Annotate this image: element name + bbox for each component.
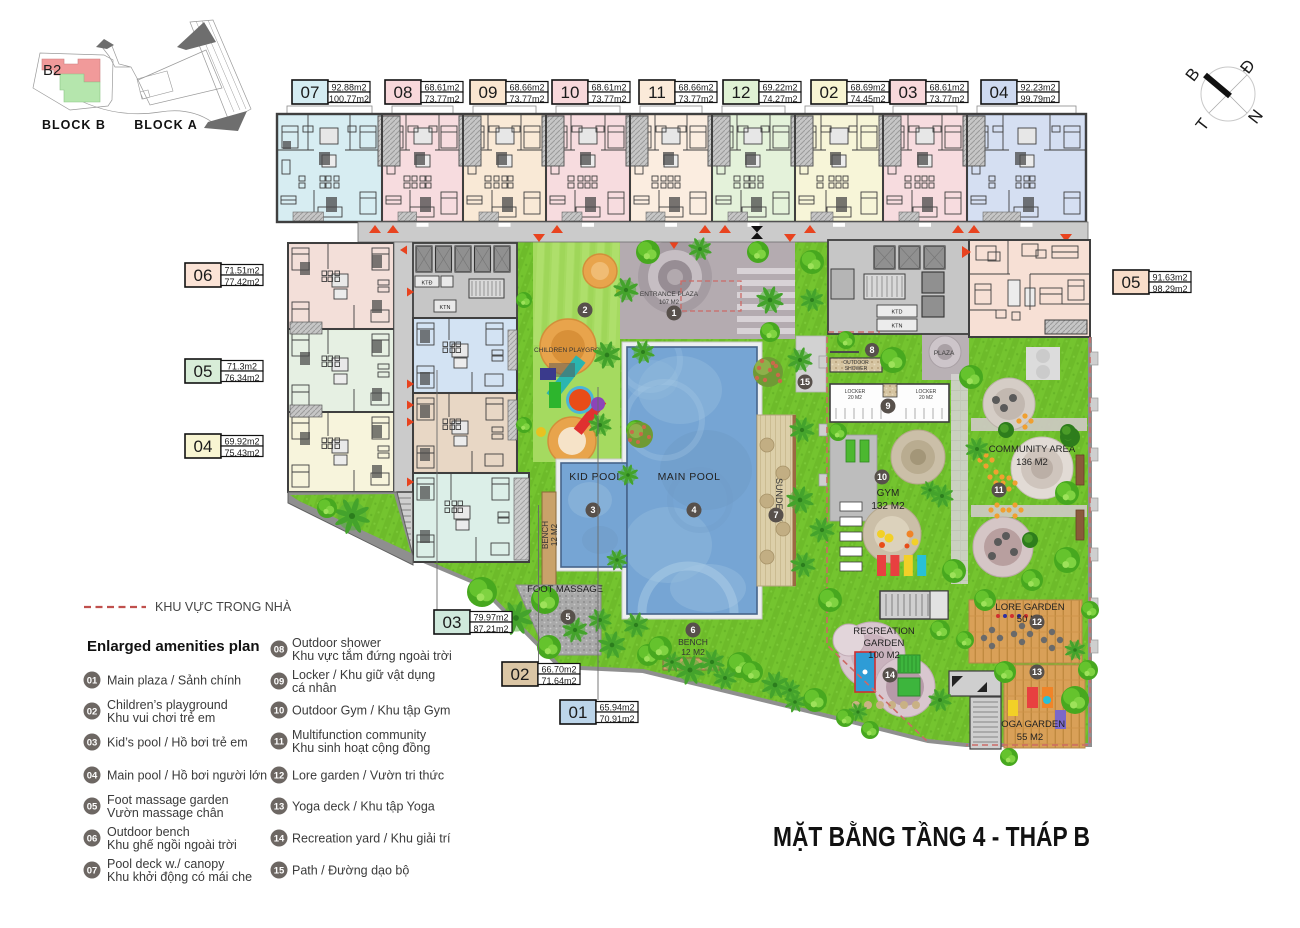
svg-text:14: 14 — [274, 834, 285, 845]
svg-text:06: 06 — [87, 834, 98, 845]
svg-text:13: 13 — [274, 802, 285, 813]
svg-text:99.79m2: 99.79m2 — [1020, 94, 1055, 104]
svg-text:68.61m2: 68.61m2 — [929, 83, 964, 93]
svg-text:BENCH: BENCH — [541, 521, 550, 549]
svg-text:68.69m2: 68.69m2 — [850, 83, 885, 93]
svg-text:cá nhân: cá nhân — [292, 681, 337, 695]
svg-text:05: 05 — [194, 362, 213, 381]
svg-text:Path / Đường dạo bộ: Path / Đường dạo bộ — [292, 864, 409, 878]
svg-text:15: 15 — [274, 866, 285, 877]
svg-text:73.77m2: 73.77m2 — [591, 94, 626, 104]
svg-text:12: 12 — [1032, 617, 1042, 627]
svg-text:Foot massage garden: Foot massage garden — [107, 793, 229, 807]
svg-text:01: 01 — [87, 676, 98, 687]
svg-text:10: 10 — [877, 472, 887, 482]
svg-text:BENCH: BENCH — [678, 637, 708, 647]
svg-text:73.77m2: 73.77m2 — [424, 94, 459, 104]
svg-text:14: 14 — [885, 670, 895, 680]
svg-text:MAIN POOL: MAIN POOL — [658, 471, 721, 483]
svg-text:MẶT BẰNG TẦNG 4 - THÁP B: MẶT BẰNG TẦNG 4 - THÁP B — [773, 821, 1090, 852]
svg-text:68.61m2: 68.61m2 — [424, 83, 459, 93]
svg-text:75.43m2: 75.43m2 — [224, 448, 259, 458]
svg-text:BLOCK A: BLOCK A — [134, 118, 197, 132]
svg-text:92.88m2: 92.88m2 — [331, 83, 366, 93]
svg-text:11: 11 — [274, 737, 285, 748]
svg-text:Enlarged amenities plan: Enlarged amenities plan — [87, 638, 260, 655]
svg-text:07: 07 — [87, 866, 98, 877]
svg-text:69.22m2: 69.22m2 — [762, 83, 797, 93]
svg-text:04: 04 — [194, 437, 213, 456]
svg-text:COMMUNITY AREA: COMMUNITY AREA — [989, 444, 1076, 455]
svg-text:PLAZA: PLAZA — [934, 350, 955, 357]
svg-text:03: 03 — [899, 83, 918, 102]
svg-text:10: 10 — [274, 706, 285, 717]
svg-text:9: 9 — [885, 401, 890, 411]
svg-text:20 M2: 20 M2 — [848, 395, 862, 401]
svg-text:91.63m2: 91.63m2 — [1152, 273, 1187, 283]
svg-text:11: 11 — [994, 485, 1004, 495]
svg-text:RECREATION: RECREATION — [853, 626, 915, 637]
svg-text:6: 6 — [690, 625, 695, 635]
svg-text:KTN: KTN — [892, 324, 903, 330]
svg-text:69.92m2: 69.92m2 — [224, 437, 259, 447]
svg-text:92.23m2: 92.23m2 — [1020, 83, 1055, 93]
svg-text:8: 8 — [869, 345, 874, 355]
svg-text:KTĐ: KTĐ — [422, 281, 433, 287]
svg-text:Khu vực tắm đứng ngoài trời: Khu vực tắm đứng ngoài trời — [292, 648, 452, 663]
svg-text:05: 05 — [87, 802, 98, 813]
svg-text:Main pool / Hồ bơi người lớn: Main pool / Hồ bơi người lớn — [107, 769, 267, 783]
svg-text:20 M2: 20 M2 — [919, 395, 933, 401]
svg-text:Khu sinh hoạt cộng đồng: Khu sinh hoạt cộng đồng — [292, 741, 430, 755]
svg-text:02: 02 — [511, 665, 530, 684]
svg-text:132 M2: 132 M2 — [871, 501, 905, 512]
svg-text:79.97m2: 79.97m2 — [473, 613, 508, 623]
svg-text:GARDEN: GARDEN — [864, 638, 905, 649]
svg-text:KTN: KTN — [440, 305, 451, 311]
svg-text:76.34m2: 76.34m2 — [224, 373, 259, 383]
svg-text:Outdoor shower: Outdoor shower — [292, 636, 381, 650]
svg-text:Locker / Khu giữ vật dụng: Locker / Khu giữ vật dụng — [292, 668, 435, 682]
svg-text:BLOCK B: BLOCK B — [42, 118, 106, 132]
svg-text:7: 7 — [773, 510, 778, 520]
svg-text:08: 08 — [274, 645, 285, 656]
svg-text:66.70m2: 66.70m2 — [541, 665, 576, 675]
svg-text:15: 15 — [800, 377, 810, 387]
svg-text:09: 09 — [274, 677, 285, 688]
svg-text:65.94m2: 65.94m2 — [599, 703, 634, 713]
svg-text:74.45m2: 74.45m2 — [850, 94, 885, 104]
svg-text:12 M2: 12 M2 — [681, 647, 705, 657]
svg-text:2: 2 — [582, 305, 587, 315]
svg-text:68.61m2: 68.61m2 — [591, 83, 626, 93]
svg-text:71.51m2: 71.51m2 — [224, 266, 259, 276]
svg-text:77.42m2: 77.42m2 — [224, 277, 259, 287]
svg-text:Khu ghế ngồi ngoài trời: Khu ghế ngồi ngoài trời — [107, 838, 237, 852]
svg-text:12 M2: 12 M2 — [550, 523, 559, 546]
svg-text:13: 13 — [1032, 667, 1042, 677]
svg-text:04: 04 — [990, 83, 1009, 102]
svg-text:71.3m2: 71.3m2 — [227, 362, 257, 372]
svg-text:68.66m2: 68.66m2 — [509, 83, 544, 93]
svg-text:12: 12 — [274, 771, 285, 782]
svg-text:Multifunction community: Multifunction community — [292, 728, 427, 742]
svg-text:70.91m2: 70.91m2 — [599, 714, 634, 724]
svg-text:Vườn massage chân: Vườn massage chân — [107, 806, 224, 820]
svg-text:12: 12 — [732, 83, 751, 102]
svg-text:YOGA GARDEN: YOGA GARDEN — [995, 719, 1065, 730]
svg-text:KTD: KTD — [892, 310, 903, 316]
svg-text:Outdoor bench: Outdoor bench — [107, 825, 190, 839]
svg-text:KID POOL: KID POOL — [569, 471, 623, 483]
svg-text:Khu khởi động có mái che: Khu khởi động có mái che — [107, 870, 252, 884]
svg-text:01: 01 — [569, 703, 588, 722]
svg-text:68.66m2: 68.66m2 — [678, 83, 713, 93]
svg-text:Khu vui chơi trẻ em: Khu vui chơi trẻ em — [107, 711, 215, 725]
svg-text:Kid’s pool / Hồ bơi trẻ em: Kid’s pool / Hồ bơi trẻ em — [107, 736, 248, 750]
svg-text:Main plaza / Sảnh chính: Main plaza / Sảnh chính — [107, 674, 241, 688]
svg-text:10: 10 — [561, 83, 580, 102]
svg-text:5: 5 — [565, 612, 570, 622]
svg-text:06: 06 — [194, 266, 213, 285]
svg-text:98.29m2: 98.29m2 — [1152, 284, 1187, 294]
svg-text:02: 02 — [87, 707, 98, 718]
svg-text:04: 04 — [87, 771, 98, 782]
svg-text:09: 09 — [479, 83, 498, 102]
svg-text:87.21m2: 87.21m2 — [473, 624, 508, 634]
svg-text:B2: B2 — [43, 62, 61, 79]
svg-text:02: 02 — [820, 83, 839, 102]
svg-text:73.77m2: 73.77m2 — [678, 94, 713, 104]
svg-text:100.77m2: 100.77m2 — [329, 94, 369, 104]
svg-text:55 M2: 55 M2 — [1017, 732, 1043, 743]
svg-text:1: 1 — [671, 308, 676, 318]
svg-text:ENTRANCE PLAZA: ENTRANCE PLAZA — [640, 291, 699, 298]
svg-text:100 M2: 100 M2 — [868, 650, 900, 661]
svg-text:74.27m2: 74.27m2 — [762, 94, 797, 104]
svg-text:03: 03 — [443, 613, 462, 632]
svg-text:05: 05 — [1122, 273, 1141, 292]
svg-text:03: 03 — [87, 738, 98, 749]
svg-text:Recreation yard / Khu giải trí: Recreation yard / Khu giải trí — [292, 832, 451, 846]
svg-text:4: 4 — [691, 505, 696, 515]
svg-text:73.77m2: 73.77m2 — [929, 94, 964, 104]
svg-text:3: 3 — [590, 505, 595, 515]
svg-text:Outdoor Gym / Khu tập Gym: Outdoor Gym / Khu tập Gym — [292, 704, 450, 718]
svg-text:Lore garden / Vườn tri thức: Lore garden / Vườn tri thức — [292, 769, 444, 783]
svg-text:136 M2: 136 M2 — [1016, 457, 1048, 468]
svg-text:LORE GARDEN: LORE GARDEN — [995, 602, 1064, 613]
svg-text:11: 11 — [648, 83, 666, 102]
svg-text:KHU VỰC TRONG NHÀ: KHU VỰC TRONG NHÀ — [155, 599, 292, 614]
svg-text:SHOWER: SHOWER — [845, 366, 868, 372]
svg-text:Pool deck w./ canopy: Pool deck w./ canopy — [107, 857, 225, 871]
svg-text:GYM: GYM — [877, 488, 900, 499]
svg-text:Children’s playground: Children’s playground — [107, 698, 228, 712]
svg-text:73.77m2: 73.77m2 — [509, 94, 544, 104]
svg-text:08: 08 — [394, 83, 413, 102]
svg-text:07: 07 — [301, 83, 320, 102]
svg-text:71.64m2: 71.64m2 — [541, 676, 576, 686]
svg-text:Yoga deck / Khu tập Yoga: Yoga deck / Khu tập Yoga — [292, 800, 435, 814]
svg-text:107 M2: 107 M2 — [659, 300, 680, 306]
